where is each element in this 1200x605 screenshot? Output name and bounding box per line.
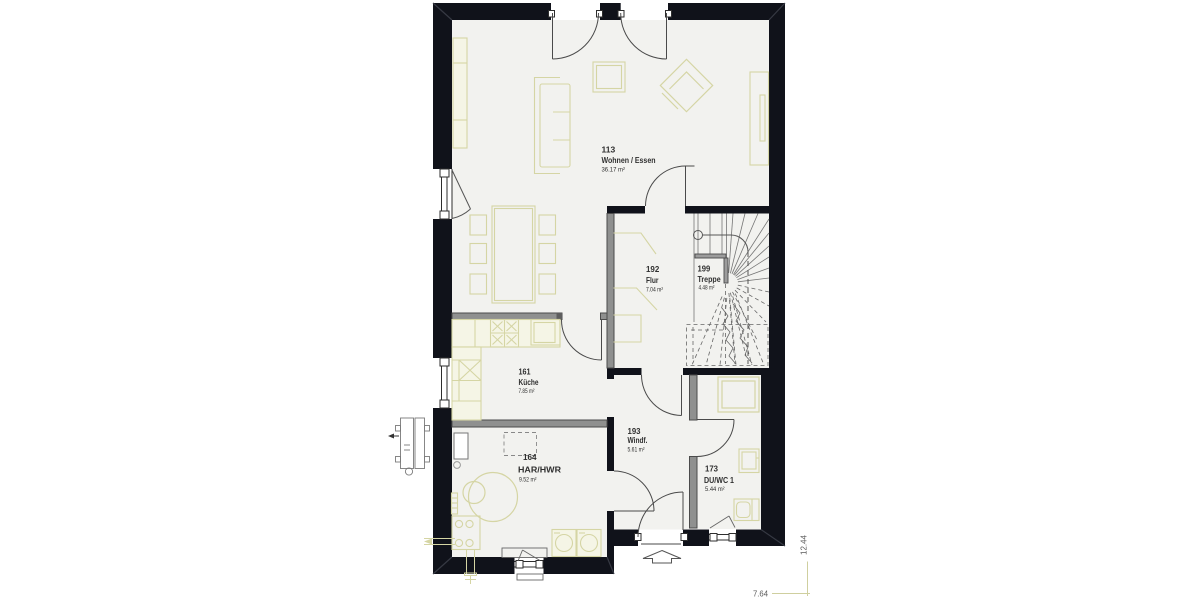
svg-text:173: 173 (705, 465, 718, 474)
svg-text:36.17 m²: 36.17 m² (602, 167, 626, 174)
svg-text:192: 192 (646, 265, 660, 274)
svg-text:5.44 m²: 5.44 m² (705, 486, 725, 493)
svg-text:Treppe: Treppe (698, 275, 722, 284)
svg-text:Flur: Flur (646, 276, 659, 285)
svg-text:9.52 m²: 9.52 m² (519, 477, 537, 484)
svg-text:5.61 m²: 5.61 m² (628, 447, 645, 454)
svg-text:4.48 m²: 4.48 m² (699, 285, 715, 292)
svg-text:199: 199 (698, 265, 711, 274)
svg-text:7.04 m²: 7.04 m² (646, 287, 663, 294)
svg-text:Windf.: Windf. (628, 436, 648, 445)
svg-text:7.85 m²: 7.85 m² (519, 388, 535, 395)
svg-text:Küche: Küche (519, 378, 539, 387)
svg-text:Wohnen / Essen: Wohnen / Essen (602, 156, 656, 165)
svg-text:DU/WC 1: DU/WC 1 (704, 476, 734, 485)
svg-text:12.44: 12.44 (800, 535, 809, 555)
svg-text:164: 164 (523, 453, 537, 462)
svg-text:7.64: 7.64 (753, 590, 768, 599)
svg-text:161: 161 (519, 368, 531, 377)
svg-text:HAR/HWR: HAR/HWR (518, 466, 561, 475)
svg-text:113: 113 (602, 146, 616, 155)
svg-text:193: 193 (628, 427, 641, 436)
